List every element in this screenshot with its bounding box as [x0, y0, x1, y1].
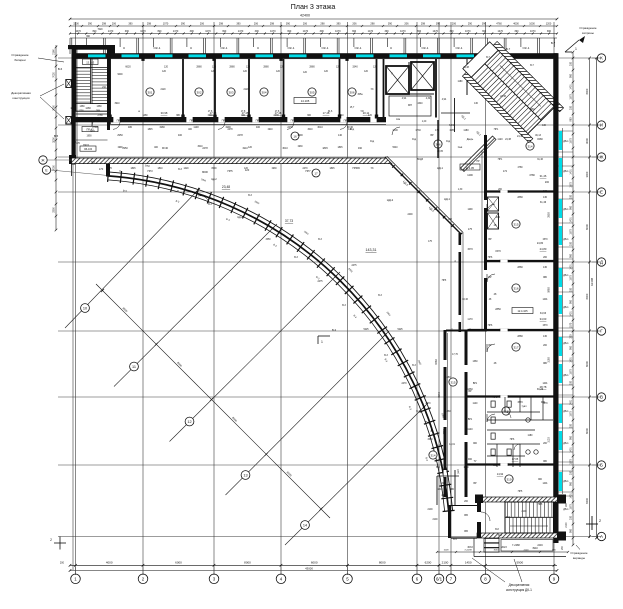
- svg-text:6000: 6000: [585, 428, 589, 434]
- svg-text:1570: 1570: [467, 248, 473, 251]
- svg-text:143,31: 143,31: [366, 248, 377, 252]
- svg-text:2950: 2950: [122, 147, 128, 150]
- svg-text:2950: 2950: [441, 495, 447, 497]
- svg-text:1070: 1070: [530, 30, 536, 33]
- svg-text:200: 200: [545, 181, 550, 184]
- svg-text:ВСДЗ: ВСДЗ: [417, 159, 424, 161]
- svg-text:1470: 1470: [303, 30, 309, 33]
- svg-text:390: 390: [157, 30, 162, 33]
- svg-text:2160: 2160: [53, 49, 56, 55]
- svg-text:ПР: ПР: [476, 161, 480, 163]
- svg-text:175: 175: [468, 228, 473, 231]
- svg-text:2880: 2880: [229, 66, 235, 69]
- svg-text:В-5: В-5: [54, 134, 59, 138]
- svg-text:ПР4: ПР4: [222, 120, 227, 123]
- svg-text:13.103: 13.103: [86, 60, 94, 64]
- svg-text:980: 980: [570, 117, 573, 122]
- svg-text:17,05: 17,05: [512, 457, 519, 461]
- svg-text:1480: 1480: [142, 115, 148, 117]
- svg-text:315: 315: [450, 380, 455, 384]
- svg-text:2758: 2758: [97, 115, 103, 117]
- svg-text:ЦД-2: ЦД-2: [387, 198, 394, 202]
- svg-text:1290: 1290: [467, 209, 473, 211]
- svg-text:2478: 2478: [287, 126, 293, 129]
- svg-text:ДБ-1: ДБ-1: [563, 238, 569, 241]
- svg-text:1470: 1470: [368, 30, 374, 33]
- svg-text:2880: 2880: [196, 66, 202, 69]
- svg-text:ОК-1: ОК-1: [154, 46, 161, 50]
- svg-text:3000: 3000: [585, 138, 589, 144]
- svg-text:1470: 1470: [498, 30, 504, 33]
- svg-text:3180: 3180: [548, 357, 551, 363]
- svg-text:314: 314: [527, 144, 532, 148]
- svg-text:200: 200: [570, 61, 573, 66]
- svg-text:Окд: Окд: [446, 141, 451, 143]
- svg-text:2023: 2023: [501, 546, 507, 549]
- svg-text:9480: 9480: [435, 359, 438, 365]
- svg-text:1570: 1570: [570, 138, 573, 144]
- svg-text:5225: 5225: [363, 329, 369, 331]
- svg-text:480: 480: [128, 126, 133, 129]
- svg-text:6000: 6000: [585, 88, 589, 94]
- svg-text:34,6: 34,6: [328, 111, 333, 113]
- svg-text:ПР6: ПР6: [510, 439, 515, 441]
- svg-text:2478: 2478: [237, 134, 243, 137]
- svg-text:2: 2: [50, 538, 52, 542]
- svg-text:2100: 2100: [566, 522, 568, 528]
- svg-text:Ж: Ж: [600, 155, 604, 160]
- svg-text:В-6: В-6: [58, 67, 63, 71]
- svg-text:298: 298: [421, 22, 426, 25]
- svg-text:298: 298: [147, 22, 152, 25]
- svg-text:3010: 3010: [317, 126, 323, 129]
- svg-text:2: 2: [599, 519, 601, 523]
- svg-text:СБ-100: СБ-100: [84, 148, 93, 151]
- svg-text:9000: 9000: [117, 74, 123, 76]
- svg-text:1360: 1360: [445, 411, 451, 413]
- svg-text:120: 120: [373, 66, 378, 69]
- svg-text:17,8: 17,8: [241, 111, 246, 113]
- svg-text:Д: Д: [600, 260, 603, 265]
- svg-text:390: 390: [352, 30, 357, 33]
- svg-text:1845: 1845: [147, 129, 153, 131]
- svg-text:1150: 1150: [446, 377, 452, 379]
- svg-text:6000: 6000: [585, 293, 589, 299]
- svg-text:3000: 3000: [585, 171, 589, 177]
- svg-text:33,46: 33,46: [462, 299, 468, 301]
- svg-text:30,98: 30,98: [161, 111, 168, 115]
- svg-text:1845: 1845: [322, 147, 328, 150]
- svg-text:1380: 1380: [79, 106, 85, 108]
- svg-text:10: 10: [83, 307, 87, 311]
- svg-text:390: 390: [222, 30, 227, 33]
- svg-text:3350: 3350: [265, 239, 271, 241]
- svg-text:17,8: 17,8: [275, 111, 280, 113]
- svg-text:1845: 1845: [329, 168, 335, 170]
- svg-text:В-5: В-5: [453, 538, 457, 541]
- svg-text:1845: 1845: [337, 147, 343, 149]
- svg-text:1070: 1070: [163, 22, 169, 25]
- svg-text:206: 206: [303, 22, 308, 25]
- svg-text:1: 1: [575, 47, 577, 51]
- svg-text:1401: 1401: [570, 493, 573, 499]
- svg-text:3120: 3120: [548, 437, 551, 443]
- svg-text:120: 120: [336, 66, 341, 69]
- svg-text:ДБ-1: ДБ-1: [563, 208, 569, 211]
- svg-text:206: 206: [352, 22, 357, 25]
- svg-text:ДБ-1: ДБ-1: [563, 342, 569, 345]
- svg-text:ВР1: ВР1: [468, 419, 473, 421]
- svg-text:120: 120: [280, 66, 285, 69]
- svg-text:24,80: 24,80: [537, 242, 544, 245]
- svg-text:1570: 1570: [542, 239, 548, 241]
- svg-text:34,63: 34,63: [540, 317, 547, 321]
- svg-text:390: 390: [125, 30, 130, 33]
- svg-text:ВР1: ВР1: [473, 383, 478, 385]
- svg-text:5040: 5040: [392, 147, 398, 149]
- svg-text:1470: 1470: [173, 30, 179, 33]
- svg-text:2850: 2850: [495, 308, 501, 311]
- svg-text:1,30: 1,30: [458, 189, 463, 191]
- svg-text:120: 120: [246, 66, 251, 69]
- svg-text:ПР6: ПР6: [488, 257, 493, 259]
- svg-text:390: 390: [287, 30, 292, 33]
- svg-text:14,92: 14,92: [497, 472, 504, 476]
- svg-text:1450: 1450: [465, 560, 472, 564]
- svg-text:4,94: 4,94: [402, 98, 407, 100]
- svg-text:980: 980: [570, 481, 573, 486]
- svg-text:2850: 2850: [548, 212, 551, 218]
- svg-text:1570: 1570: [570, 459, 573, 465]
- svg-text:ОК-1: ОК-1: [456, 46, 463, 50]
- svg-text:1570: 1570: [570, 275, 573, 281]
- svg-text:11: 11: [132, 365, 136, 369]
- svg-text:И: И: [600, 123, 603, 128]
- svg-text:17,70: 17,70: [452, 354, 458, 356]
- svg-text:130: 130: [543, 196, 548, 199]
- svg-text:30,29: 30,29: [537, 388, 544, 391]
- svg-text:23,48: 23,48: [222, 185, 230, 189]
- svg-text:8000: 8000: [211, 168, 217, 170]
- svg-text:1990: 1990: [297, 134, 303, 137]
- svg-text:1930: 1930: [271, 168, 277, 170]
- svg-text:1570: 1570: [542, 403, 548, 405]
- svg-text:301: 301: [147, 90, 152, 94]
- svg-text:980: 980: [570, 253, 573, 258]
- svg-text:390: 390: [320, 30, 325, 33]
- svg-text:1070: 1070: [75, 30, 81, 33]
- svg-text:2880: 2880: [517, 335, 523, 338]
- svg-text:390: 390: [450, 30, 455, 33]
- svg-text:Б: Б: [600, 463, 603, 468]
- svg-text:1401: 1401: [570, 357, 573, 363]
- svg-text:ВР: ВР: [488, 345, 492, 347]
- svg-text:980: 980: [570, 73, 573, 78]
- svg-text:1008: 1008: [444, 549, 450, 551]
- svg-text:130: 130: [543, 335, 548, 338]
- svg-text:ПР1: ПР1: [117, 120, 122, 123]
- svg-text:390: 390: [255, 30, 260, 33]
- svg-text:302: 302: [196, 90, 201, 94]
- svg-text:200: 200: [570, 287, 573, 292]
- svg-text:ДБ-1: ДБ-1: [563, 508, 569, 511]
- svg-text:Ограждение: Ограждение: [579, 26, 597, 30]
- svg-text:ПР6: ПР6: [488, 325, 493, 327]
- svg-text:24,38: 24,38: [505, 139, 511, 141]
- svg-text:1470: 1470: [433, 30, 439, 33]
- svg-text:6000: 6000: [585, 361, 589, 367]
- svg-text:1990: 1990: [207, 115, 213, 117]
- svg-text:390: 390: [482, 22, 487, 25]
- svg-text:1810: 1810: [157, 168, 163, 170]
- svg-text:4,94: 4,94: [442, 99, 447, 101]
- svg-text:ПР1: ПР1: [494, 129, 499, 131]
- svg-text:ПР5: ПР5: [538, 504, 543, 506]
- svg-text:Н.4.05: Н.4.05: [466, 166, 474, 170]
- svg-text:2475: 2475: [317, 281, 323, 283]
- svg-text:ПР5: ПР5: [227, 169, 233, 173]
- svg-text:ПРб: ПРб: [442, 280, 447, 282]
- svg-text:200: 200: [570, 334, 573, 339]
- svg-text:390: 390: [181, 22, 186, 25]
- svg-text:24,38: 24,38: [463, 67, 469, 69]
- svg-text:980: 980: [570, 435, 573, 440]
- svg-text:1401: 1401: [570, 217, 573, 223]
- svg-text:1070: 1070: [335, 30, 341, 33]
- svg-text:1401: 1401: [570, 169, 573, 175]
- svg-text:206: 206: [254, 22, 259, 25]
- svg-text:314: 314: [430, 453, 435, 457]
- svg-text:МП: МП: [408, 104, 412, 107]
- svg-text:2880: 2880: [517, 196, 523, 199]
- svg-text:В-3: В-3: [332, 328, 337, 332]
- svg-text:980: 980: [570, 205, 573, 210]
- svg-text:319: 319: [506, 477, 511, 481]
- svg-text:298: 298: [102, 22, 107, 25]
- svg-text:298: 298: [219, 22, 224, 25]
- svg-text:3010: 3010: [197, 146, 203, 148]
- svg-text:ПР3: ПР3: [147, 169, 153, 173]
- svg-text:1070: 1070: [270, 30, 276, 33]
- svg-text:200: 200: [60, 562, 65, 565]
- svg-text:4780: 4780: [517, 167, 523, 169]
- svg-text:ДБ-1: ДБ-1: [563, 442, 569, 445]
- svg-text:2478: 2478: [202, 147, 208, 150]
- svg-text:3910: 3910: [114, 103, 120, 105]
- svg-text:1290: 1290: [467, 174, 473, 177]
- svg-text:ВР: ВР: [473, 483, 477, 485]
- svg-text:8480: 8480: [529, 109, 535, 111]
- svg-text:980: 980: [570, 345, 573, 350]
- svg-text:3060: 3060: [494, 549, 500, 551]
- svg-text:1401: 1401: [570, 399, 573, 405]
- svg-text:316: 316: [513, 286, 518, 290]
- svg-text:390: 390: [88, 22, 93, 25]
- svg-text:ВР: ВР: [488, 239, 492, 241]
- svg-text:24,38: 24,38: [500, 96, 506, 98]
- svg-text:37,73: 37,73: [285, 219, 293, 223]
- svg-text:Окд: Окд: [412, 139, 417, 141]
- svg-text:7020: 7020: [53, 72, 56, 78]
- svg-text:14: 14: [303, 524, 307, 528]
- svg-text:390: 390: [547, 30, 552, 33]
- svg-text:2400: 2400: [407, 214, 413, 216]
- svg-text:1290: 1290: [78, 111, 84, 113]
- svg-text:ПР7: ПР7: [352, 166, 358, 170]
- svg-text:46,13: 46,13: [535, 135, 541, 137]
- svg-text:1213: 1213: [437, 489, 443, 491]
- svg-text:1401: 1401: [570, 311, 573, 317]
- svg-text:Сыв: Сыв: [458, 147, 463, 149]
- svg-text:ОК-1: ОК-1: [221, 46, 228, 50]
- svg-text:Е: Е: [600, 190, 603, 195]
- svg-text:3940: 3940: [532, 547, 538, 550]
- svg-text:1200: 1200: [546, 22, 552, 25]
- svg-text:1570: 1570: [570, 322, 573, 328]
- svg-text:206: 206: [112, 22, 117, 25]
- svg-text:2100: 2100: [432, 519, 438, 521]
- svg-text:298: 298: [370, 22, 375, 25]
- svg-text:2470: 2470: [425, 403, 431, 405]
- svg-text:980: 980: [570, 528, 573, 533]
- svg-text:1180: 1180: [463, 129, 469, 132]
- svg-text:7020: 7020: [97, 29, 103, 31]
- svg-text:6000: 6000: [585, 224, 589, 230]
- svg-text:298: 298: [270, 22, 275, 25]
- svg-text:6620: 6620: [125, 66, 131, 69]
- svg-text:24,80: 24,80: [540, 247, 547, 251]
- svg-text:1570: 1570: [570, 411, 573, 417]
- svg-text:1280: 1280: [78, 120, 84, 122]
- svg-text:Декоративная: Декоративная: [509, 583, 530, 587]
- svg-text:1: 1: [321, 340, 323, 344]
- svg-text:4340: 4340: [417, 103, 423, 105]
- svg-text:1420: 1420: [183, 168, 189, 170]
- svg-text:2880: 2880: [263, 66, 269, 69]
- svg-text:6000: 6000: [585, 497, 589, 503]
- svg-text:2120: 2120: [243, 89, 249, 91]
- svg-text:1140: 1140: [467, 428, 473, 431]
- svg-text:3010: 3010: [282, 147, 288, 150]
- svg-text:1990: 1990: [86, 136, 92, 138]
- svg-text:130: 130: [543, 266, 548, 269]
- svg-text:1570: 1570: [570, 94, 573, 100]
- svg-text:ДБ-1: ДБ-1: [563, 274, 569, 277]
- svg-text:206: 206: [452, 22, 457, 25]
- svg-text:1930: 1930: [297, 146, 303, 148]
- svg-text:2446: 2446: [537, 544, 543, 547]
- svg-text:980: 980: [570, 299, 573, 304]
- svg-text:ОК-1: ОК-1: [523, 46, 530, 50]
- svg-text:1360: 1360: [472, 361, 478, 363]
- svg-text:305: 305: [309, 90, 314, 94]
- svg-text:304: 304: [261, 90, 266, 94]
- svg-text:2100: 2100: [442, 560, 449, 564]
- svg-text:пом: пом: [396, 119, 401, 121]
- svg-text:ОК-1: ОК-1: [422, 46, 429, 50]
- svg-text:3300: 3300: [53, 207, 56, 213]
- svg-text:1140: 1140: [473, 403, 479, 405]
- svg-text:390: 390: [190, 30, 195, 33]
- svg-text:4000: 4000: [106, 560, 113, 564]
- svg-text:1070: 1070: [140, 30, 146, 33]
- svg-text:306: 306: [349, 90, 354, 94]
- svg-text:390: 390: [128, 22, 133, 25]
- svg-text:1180: 1180: [528, 435, 534, 437]
- svg-text:1570: 1570: [542, 325, 548, 327]
- svg-text:43000: 43000: [305, 567, 313, 571]
- svg-text:3340: 3340: [352, 66, 358, 69]
- svg-text:ВР: ВР: [430, 135, 434, 137]
- svg-text:390: 390: [236, 22, 241, 25]
- svg-text:390: 390: [385, 30, 390, 33]
- svg-text:8000: 8000: [202, 170, 208, 174]
- svg-text:4000: 4000: [513, 22, 519, 25]
- svg-text:веранды: веранды: [573, 556, 585, 560]
- svg-text:ПР4: ПР4: [344, 120, 349, 123]
- svg-text:4,34: 4,34: [426, 98, 431, 100]
- svg-text:400: 400: [256, 126, 261, 129]
- svg-text:390: 390: [514, 30, 519, 33]
- svg-text:1470: 1470: [108, 30, 114, 33]
- svg-text:2120: 2120: [160, 89, 166, 91]
- svg-text:1401: 1401: [570, 264, 573, 270]
- svg-text:1910: 1910: [267, 129, 273, 131]
- svg-text:298: 298: [320, 22, 325, 25]
- svg-text:7=2288: 7=2288: [464, 549, 472, 551]
- svg-text:1401: 1401: [542, 299, 548, 301]
- svg-text:14.105: 14.105: [301, 99, 310, 103]
- svg-text:Ограждение: Ограждение: [11, 53, 29, 57]
- svg-text:1980: 1980: [159, 126, 165, 129]
- svg-text:390: 390: [286, 22, 291, 25]
- svg-text:1070: 1070: [400, 30, 406, 33]
- svg-text:6/1: 6/1: [436, 576, 443, 581]
- svg-text:ДБ-1: ДБ-1: [563, 374, 569, 377]
- svg-text:3200: 3200: [73, 22, 79, 25]
- svg-text:42408: 42408: [590, 277, 594, 286]
- svg-text:17: 17: [314, 171, 318, 175]
- svg-text:31,46: 31,46: [540, 174, 547, 178]
- svg-text:батареи: батареи: [14, 58, 26, 62]
- svg-text:206: 206: [200, 22, 205, 25]
- svg-text:ПР6: ПР6: [493, 397, 498, 399]
- svg-text:УЭ: УЭ: [360, 111, 363, 113]
- svg-text:206: 206: [404, 22, 409, 25]
- svg-text:В: В: [600, 395, 603, 400]
- svg-text:15,7: 15,7: [350, 107, 355, 109]
- svg-text:3010: 3010: [307, 129, 313, 131]
- svg-text:ш: ш: [138, 111, 140, 113]
- svg-text:490: 490: [358, 147, 363, 150]
- svg-text:20,11: 20,11: [363, 111, 370, 115]
- svg-text:туал: туал: [521, 405, 527, 408]
- svg-text:ЦД-2: ЦД-2: [211, 179, 217, 181]
- svg-text:1120: 1120: [497, 138, 503, 141]
- svg-text:1570: 1570: [495, 250, 501, 253]
- svg-text:315: 315: [513, 222, 518, 226]
- svg-text:6200: 6200: [425, 560, 432, 564]
- svg-text:200: 200: [570, 423, 573, 428]
- svg-text:ЦД-1: ЦД-1: [444, 197, 451, 201]
- svg-text:2470: 2470: [401, 383, 407, 385]
- svg-text:3350: 3350: [427, 439, 433, 441]
- svg-text:А: А: [600, 534, 603, 539]
- svg-text:ПР4: ПР4: [256, 120, 261, 123]
- svg-text:Окд: Окд: [370, 141, 375, 143]
- svg-text:2478: 2478: [273, 115, 279, 117]
- svg-text:12: 12: [187, 420, 191, 424]
